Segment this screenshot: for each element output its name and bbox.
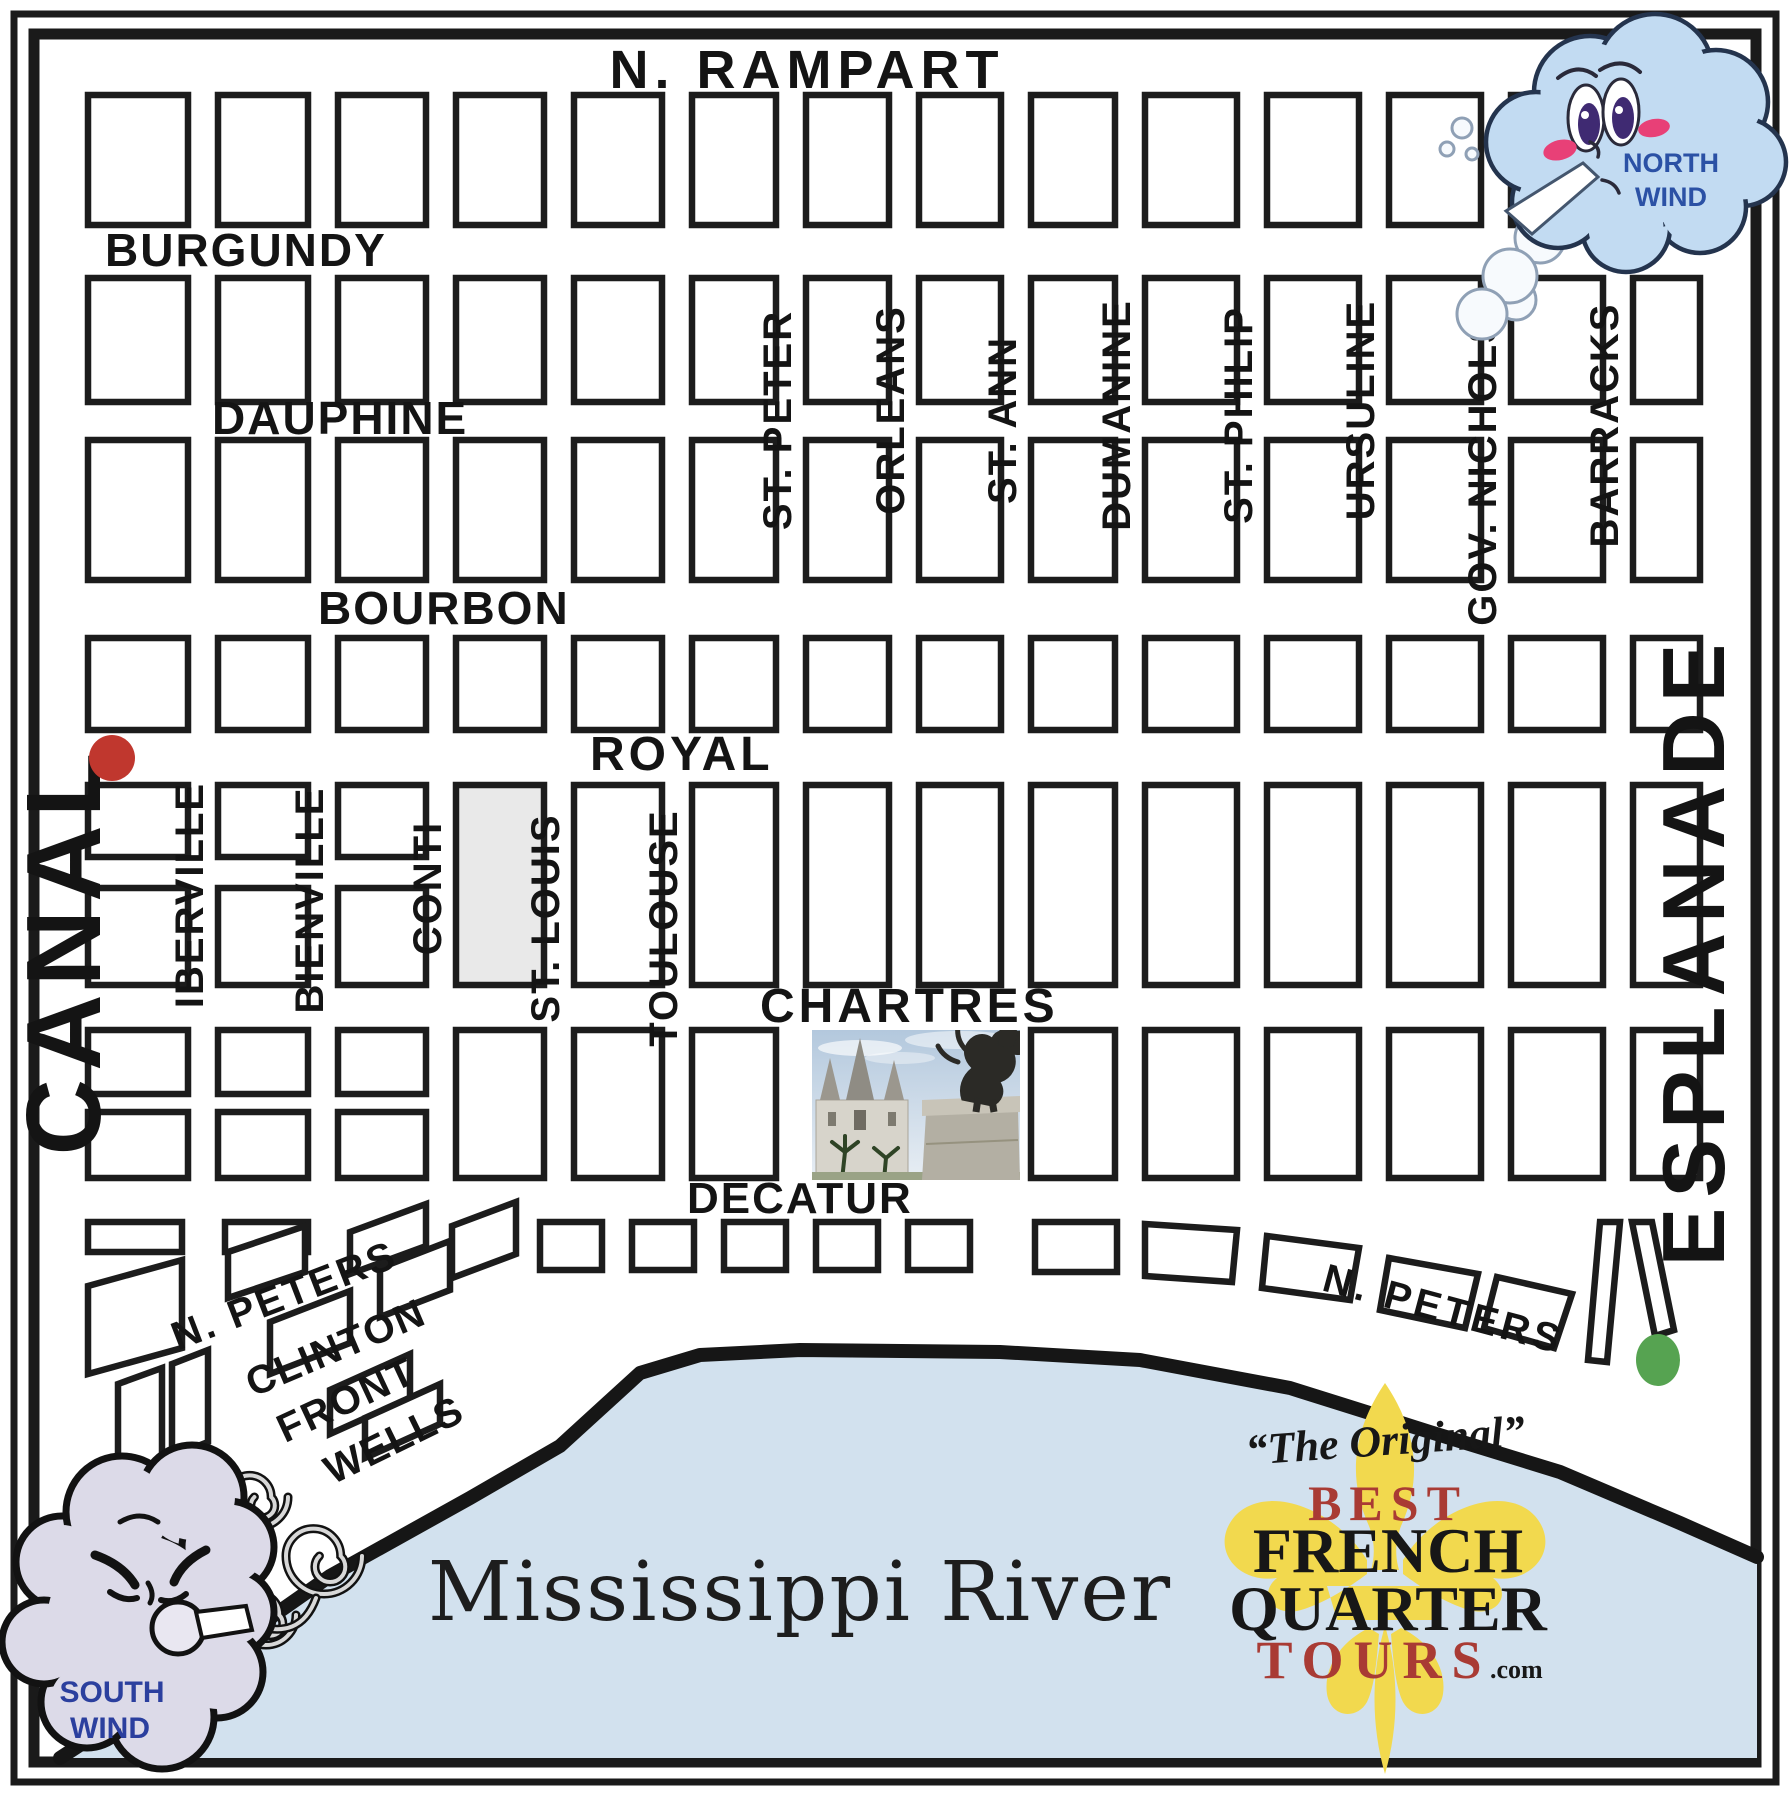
city-block	[632, 1222, 694, 1270]
city-block	[218, 278, 308, 402]
city-block	[218, 1112, 308, 1178]
city-block	[919, 785, 1001, 985]
city-block	[574, 95, 662, 225]
street-label-esplanade: ESPLANADE	[1644, 634, 1743, 1267]
city-block	[218, 95, 308, 225]
logo-tours: TOURS	[1256, 1630, 1491, 1690]
city-block	[1511, 1030, 1603, 1178]
city-block	[574, 278, 662, 402]
city-block	[88, 1222, 182, 1252]
north-wind-label-line1: NORTH	[1623, 148, 1719, 178]
city-block	[1031, 95, 1115, 225]
city-block	[1389, 785, 1481, 985]
city-block	[338, 278, 426, 402]
city-block	[919, 95, 1001, 225]
city-block	[1031, 785, 1115, 985]
city-block	[1267, 785, 1359, 985]
city-block	[692, 638, 776, 730]
street-label-gov-nichols: GOV. NICHOLS	[1461, 314, 1505, 625]
city-block	[806, 785, 889, 985]
city-block	[456, 440, 544, 580]
marker-esplanade-dot	[1636, 1334, 1680, 1386]
city-block	[338, 638, 426, 730]
street-label-ursuline: URSULINE	[1339, 300, 1383, 520]
city-block	[1267, 95, 1359, 225]
city-block	[574, 1030, 662, 1178]
city-block	[456, 95, 544, 225]
city-block	[724, 1222, 786, 1270]
city-block	[456, 278, 544, 402]
city-block	[1267, 1030, 1359, 1178]
city-block	[574, 440, 662, 580]
jackson-square-photo	[812, 1016, 1042, 1180]
city-block	[692, 785, 776, 985]
street-label-barracks: BARRACKS	[1583, 303, 1627, 548]
street-label-st-ann: ST. ANN	[981, 336, 1025, 504]
street-label-bourbon: BOURBON	[318, 582, 570, 634]
street-label-n-rampart: N. RAMPART	[610, 40, 1005, 100]
city-block	[338, 440, 426, 580]
marker-canal-royal-dot	[89, 735, 135, 781]
city-block	[88, 638, 188, 730]
city-block	[1511, 785, 1603, 985]
city-block	[1633, 278, 1700, 402]
city-block	[1389, 95, 1481, 225]
city-block	[172, 1350, 208, 1456]
city-block	[1633, 440, 1700, 580]
street-label-dumanine: DUMANINE	[1095, 299, 1139, 531]
french-quarter-tour-map: Mississippi River “The Original” BEST FR…	[0, 0, 1790, 1796]
street-label-conti: CONTI	[406, 821, 450, 955]
city-block	[816, 1222, 878, 1270]
city-block	[338, 1112, 426, 1178]
city-block	[1035, 1222, 1117, 1272]
street-label-orleans: ORLEANS	[869, 305, 913, 515]
city-block	[338, 95, 426, 225]
city-block	[1511, 638, 1603, 730]
street-label-st-louis: ST. LOUIS	[524, 813, 568, 1022]
logo-dotcom: .com	[1490, 1655, 1543, 1684]
street-label-chartres: CHARTRES	[760, 980, 1059, 1033]
north-wind-label-line2: WIND	[1635, 182, 1707, 212]
city-block	[1267, 638, 1359, 730]
city-block	[88, 95, 188, 225]
street-label-royal: ROYAL	[590, 728, 774, 781]
city-block	[1145, 1030, 1237, 1178]
street-label-burgundy: BURGUNDY	[105, 224, 387, 276]
city-block	[1145, 95, 1237, 225]
street-label-bienville: BIENVILLE	[288, 787, 332, 1014]
city-block	[919, 638, 1001, 730]
city-block	[1145, 1224, 1237, 1282]
city-block	[88, 440, 188, 580]
city-block	[218, 1030, 308, 1094]
city-block	[1145, 785, 1237, 985]
street-label-st-peter: ST. PETER	[756, 310, 800, 530]
city-block	[218, 638, 308, 730]
street-label-toulouse: TOULOUSE	[642, 809, 686, 1047]
city-block	[806, 638, 889, 730]
city-block	[692, 1030, 776, 1178]
city-block	[540, 1222, 602, 1270]
city-block	[806, 95, 889, 225]
city-block	[1031, 638, 1115, 730]
south-wind-label-line1: SOUTH	[60, 1676, 165, 1709]
city-block	[456, 638, 544, 730]
river-label: Mississippi River	[428, 1545, 1172, 1640]
city-block	[338, 1030, 426, 1094]
street-label-st-philip: ST. PHILIP	[1217, 306, 1261, 524]
city-block	[88, 278, 188, 402]
city-block	[1389, 638, 1481, 730]
city-block	[1389, 1030, 1481, 1178]
street-label-canal: CANAL	[5, 745, 123, 1156]
city-block	[218, 440, 308, 580]
city-block	[1145, 638, 1237, 730]
street-label-decatur: DECATUR	[687, 1174, 913, 1223]
city-block	[574, 638, 662, 730]
city-block	[908, 1222, 970, 1270]
street-label-dauphine: DAUPHINE	[212, 392, 468, 444]
city-block	[1031, 1030, 1115, 1178]
city-block	[456, 1030, 544, 1178]
city-block	[692, 95, 776, 225]
street-label-iberville: IBERVILLE	[168, 782, 212, 1008]
south-wind-label-line2: WIND	[70, 1712, 150, 1745]
